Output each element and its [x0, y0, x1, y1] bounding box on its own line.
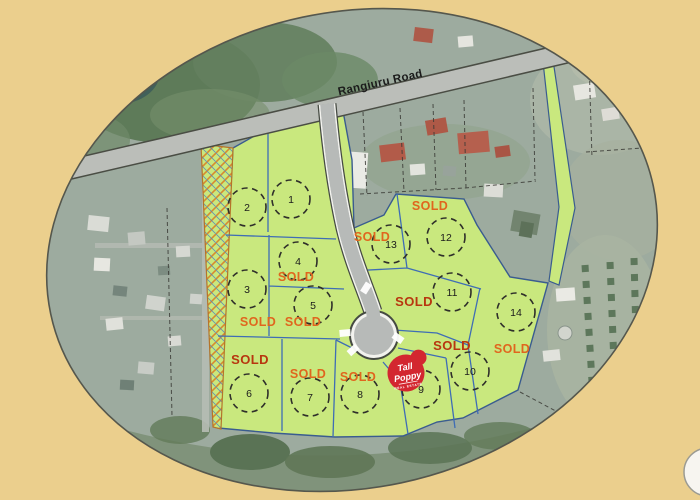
lot-number: 2	[244, 202, 250, 214]
lot-number: 14	[510, 307, 522, 319]
sold-label-lot-10: SOLD	[433, 338, 471, 353]
lot-number: 4	[295, 256, 301, 268]
sold-label-lot-3: SOLD	[240, 315, 276, 329]
sold-label-lot-6: SOLD	[231, 352, 269, 367]
sold-label-lot-12: SOLD	[412, 199, 448, 213]
sold-label-lot-7: SOLD	[290, 367, 326, 381]
subdivision-map: 1234567891011121314 SOLDSOLDSOLDSOLDSOLD…	[0, 0, 700, 500]
sold-label-lot-14: SOLD	[494, 342, 530, 356]
lot-number: 10	[464, 366, 476, 378]
lot-number: 11	[447, 287, 458, 299]
lot-number: 6	[246, 388, 252, 400]
lot-number: 1	[288, 194, 294, 206]
lot-number: 8	[357, 389, 363, 401]
subdivision-map-screenshot: 1234567891011121314 SOLDSOLDSOLDSOLDSOLD…	[0, 0, 700, 500]
lot-number: 12	[440, 232, 452, 244]
lot-number: 7	[307, 392, 313, 404]
lot-number: 3	[244, 284, 250, 296]
sold-label-lot-13: SOLD	[354, 230, 390, 244]
sold-label-lot-4: SOLD	[278, 270, 314, 284]
sold-label-lot-5: SOLD	[285, 315, 321, 329]
sold-label-lot-8: SOLD	[340, 370, 376, 384]
lot-number: 5	[310, 300, 316, 312]
sold-label-lot-11: SOLD	[395, 294, 433, 309]
